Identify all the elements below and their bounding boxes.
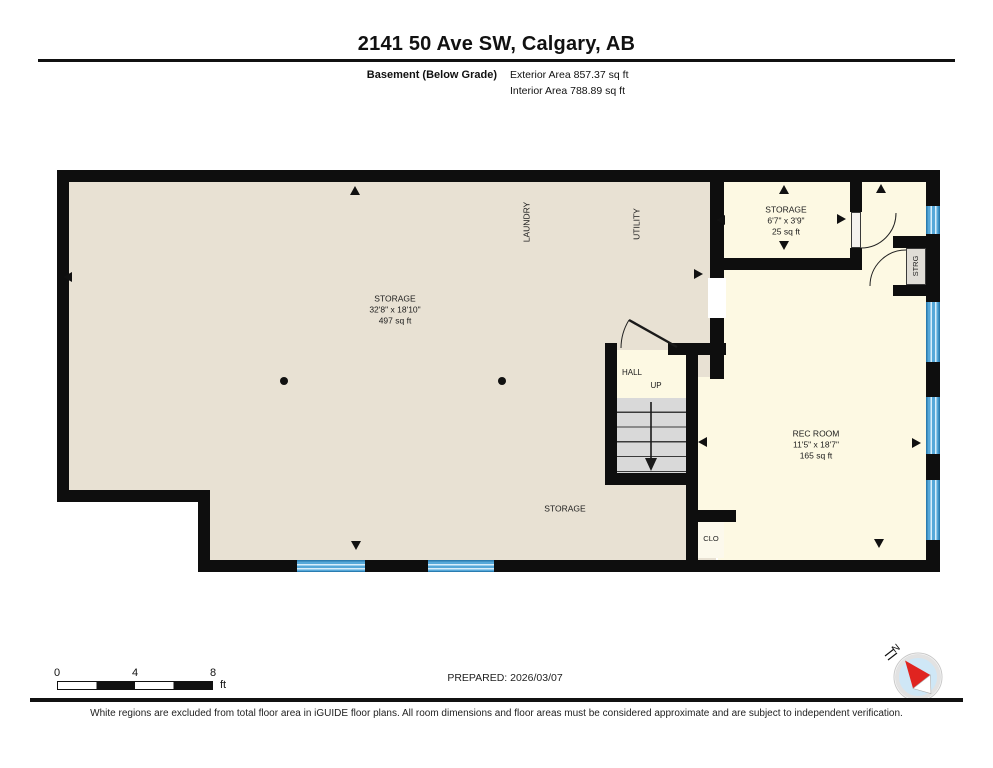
room-label-rec-room: REC ROOM 11'5" x 18'7" 165 sq ft bbox=[793, 428, 840, 461]
measure-arrow-icon bbox=[837, 214, 846, 224]
scale-tick-end: 8 bbox=[203, 667, 223, 679]
room-name: REC ROOM bbox=[793, 428, 840, 439]
stair-direction-label: UP bbox=[650, 381, 661, 391]
room-label-utility: UTILITY bbox=[631, 208, 642, 240]
measure-arrow-icon bbox=[694, 269, 703, 279]
room-dims: 6'7" x 3'9" bbox=[765, 215, 806, 226]
measure-arrow-icon bbox=[350, 186, 360, 195]
measure-arrow-icon bbox=[716, 215, 725, 225]
room-name: STORAGE bbox=[765, 204, 806, 215]
wall-segment bbox=[57, 170, 69, 502]
wall-segment bbox=[710, 258, 862, 270]
room-area: 25 sq ft bbox=[765, 227, 806, 238]
measure-arrow-icon bbox=[63, 272, 72, 282]
structural-post bbox=[498, 377, 506, 385]
wall-segment bbox=[668, 343, 726, 355]
window-marker bbox=[926, 302, 940, 362]
wall-segment bbox=[850, 176, 862, 212]
scale-tick-mid: 4 bbox=[125, 667, 145, 679]
wall-segment bbox=[850, 248, 862, 270]
rec-room-area bbox=[718, 176, 934, 566]
footer-divider bbox=[30, 698, 963, 702]
wall-segment bbox=[605, 343, 617, 485]
wall-segment bbox=[686, 343, 698, 560]
room-label-strg: STRG bbox=[911, 256, 921, 277]
wall-segment bbox=[696, 510, 736, 522]
room-label-clo: CLO bbox=[703, 534, 718, 544]
footer-disclaimer: White regions are excluded from total fl… bbox=[0, 708, 993, 719]
room-label-hall: HALL bbox=[622, 368, 642, 378]
measure-arrow-icon bbox=[351, 541, 361, 550]
door-panel bbox=[851, 212, 861, 248]
measure-arrow-icon bbox=[876, 184, 886, 193]
room-name: STORAGE bbox=[369, 293, 420, 304]
measure-arrow-icon bbox=[779, 241, 789, 250]
floor-plan: STORAGE 32'8" x 18'10" 497 sq ft LAUNDRY… bbox=[0, 0, 993, 768]
window-marker bbox=[926, 206, 940, 234]
scale-unit-label: ft bbox=[220, 679, 226, 691]
measure-arrow-icon bbox=[779, 185, 789, 194]
wall-segment bbox=[57, 490, 210, 502]
wall-segment bbox=[605, 473, 698, 485]
room-dims: 11'5" x 18'7" bbox=[793, 439, 840, 450]
room-dims: 32'8" x 18'10" bbox=[369, 304, 420, 315]
measure-arrow-icon bbox=[874, 539, 884, 548]
measure-arrow-icon bbox=[698, 437, 707, 447]
excluded-notch-area bbox=[57, 502, 198, 577]
doorway-opening bbox=[708, 278, 726, 318]
wall-segment bbox=[57, 170, 940, 182]
window-marker bbox=[428, 560, 494, 572]
prepared-date-label: PREPARED: 2026/03/07 bbox=[405, 672, 605, 684]
window-marker bbox=[297, 560, 365, 572]
scale-bar bbox=[57, 681, 213, 690]
scale-tick-start: 0 bbox=[47, 667, 67, 679]
room-label-laundry: LAUNDRY bbox=[521, 202, 532, 242]
room-area: 497 sq ft bbox=[369, 316, 420, 327]
wall-segment bbox=[893, 285, 940, 296]
room-label-storage-under: STORAGE bbox=[544, 503, 585, 514]
floor-plan-page: { "header": { "title": "2141 50 Ave SW, … bbox=[0, 0, 993, 768]
wall-segment bbox=[893, 236, 940, 248]
room-label-storage-main: STORAGE 32'8" x 18'10" 497 sq ft bbox=[369, 293, 420, 326]
window-marker bbox=[926, 397, 940, 454]
room-area: 165 sq ft bbox=[793, 451, 840, 462]
measure-arrow-icon bbox=[912, 438, 921, 448]
room-label-storage-small: STORAGE 6'7" x 3'9" 25 sq ft bbox=[765, 204, 806, 237]
staircase bbox=[617, 398, 686, 473]
window-marker bbox=[926, 480, 940, 540]
structural-post bbox=[280, 377, 288, 385]
